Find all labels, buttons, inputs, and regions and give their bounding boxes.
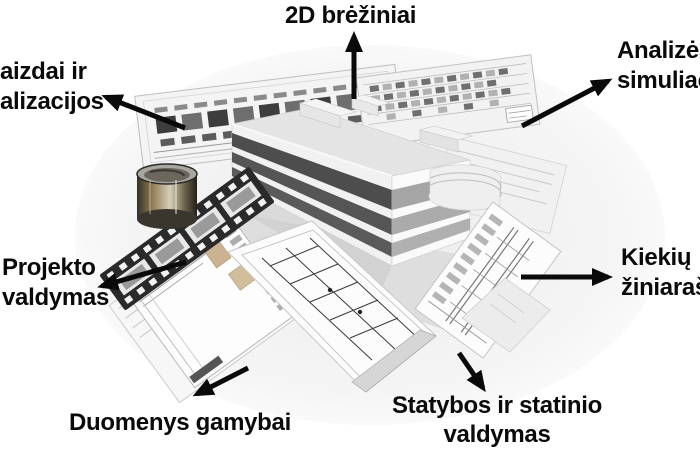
label-quantities-line1: Kiekių [621, 243, 700, 273]
label-analysis: Analizės simuliac [617, 36, 700, 96]
label-visualizations-line1: aizdai ir [0, 57, 104, 87]
label-construction-line1: Statybos ir statinio [383, 391, 611, 420]
label-construction-management: Statybos ir statinio valdymas [383, 391, 611, 449]
render-cylinder [137, 164, 197, 229]
label-project-management: Projekto valdymas [2, 253, 109, 313]
label-quantities-line2: žiniaraš [621, 273, 700, 303]
label-construction-line2: valdymas [383, 420, 611, 449]
label-visualizations-line2: alizacijos [0, 87, 104, 117]
label-manufacturing-data: Duomenys gamybai [69, 408, 291, 438]
bim-diagram: 2D brėžiniai aizdai ir alizacijos Analiz… [0, 0, 700, 464]
label-project-line1: Projekto [2, 253, 109, 283]
label-visualizations: aizdai ir alizacijos [0, 57, 104, 117]
label-project-line2: valdymas [2, 283, 109, 313]
label-quantity-takeoffs: Kiekių žiniaraš [621, 243, 700, 303]
label-analysis-line1: Analizės [617, 36, 700, 66]
label-2d-drawings: 2D brėžiniai [285, 1, 416, 31]
label-analysis-line2: simuliac [617, 66, 700, 96]
